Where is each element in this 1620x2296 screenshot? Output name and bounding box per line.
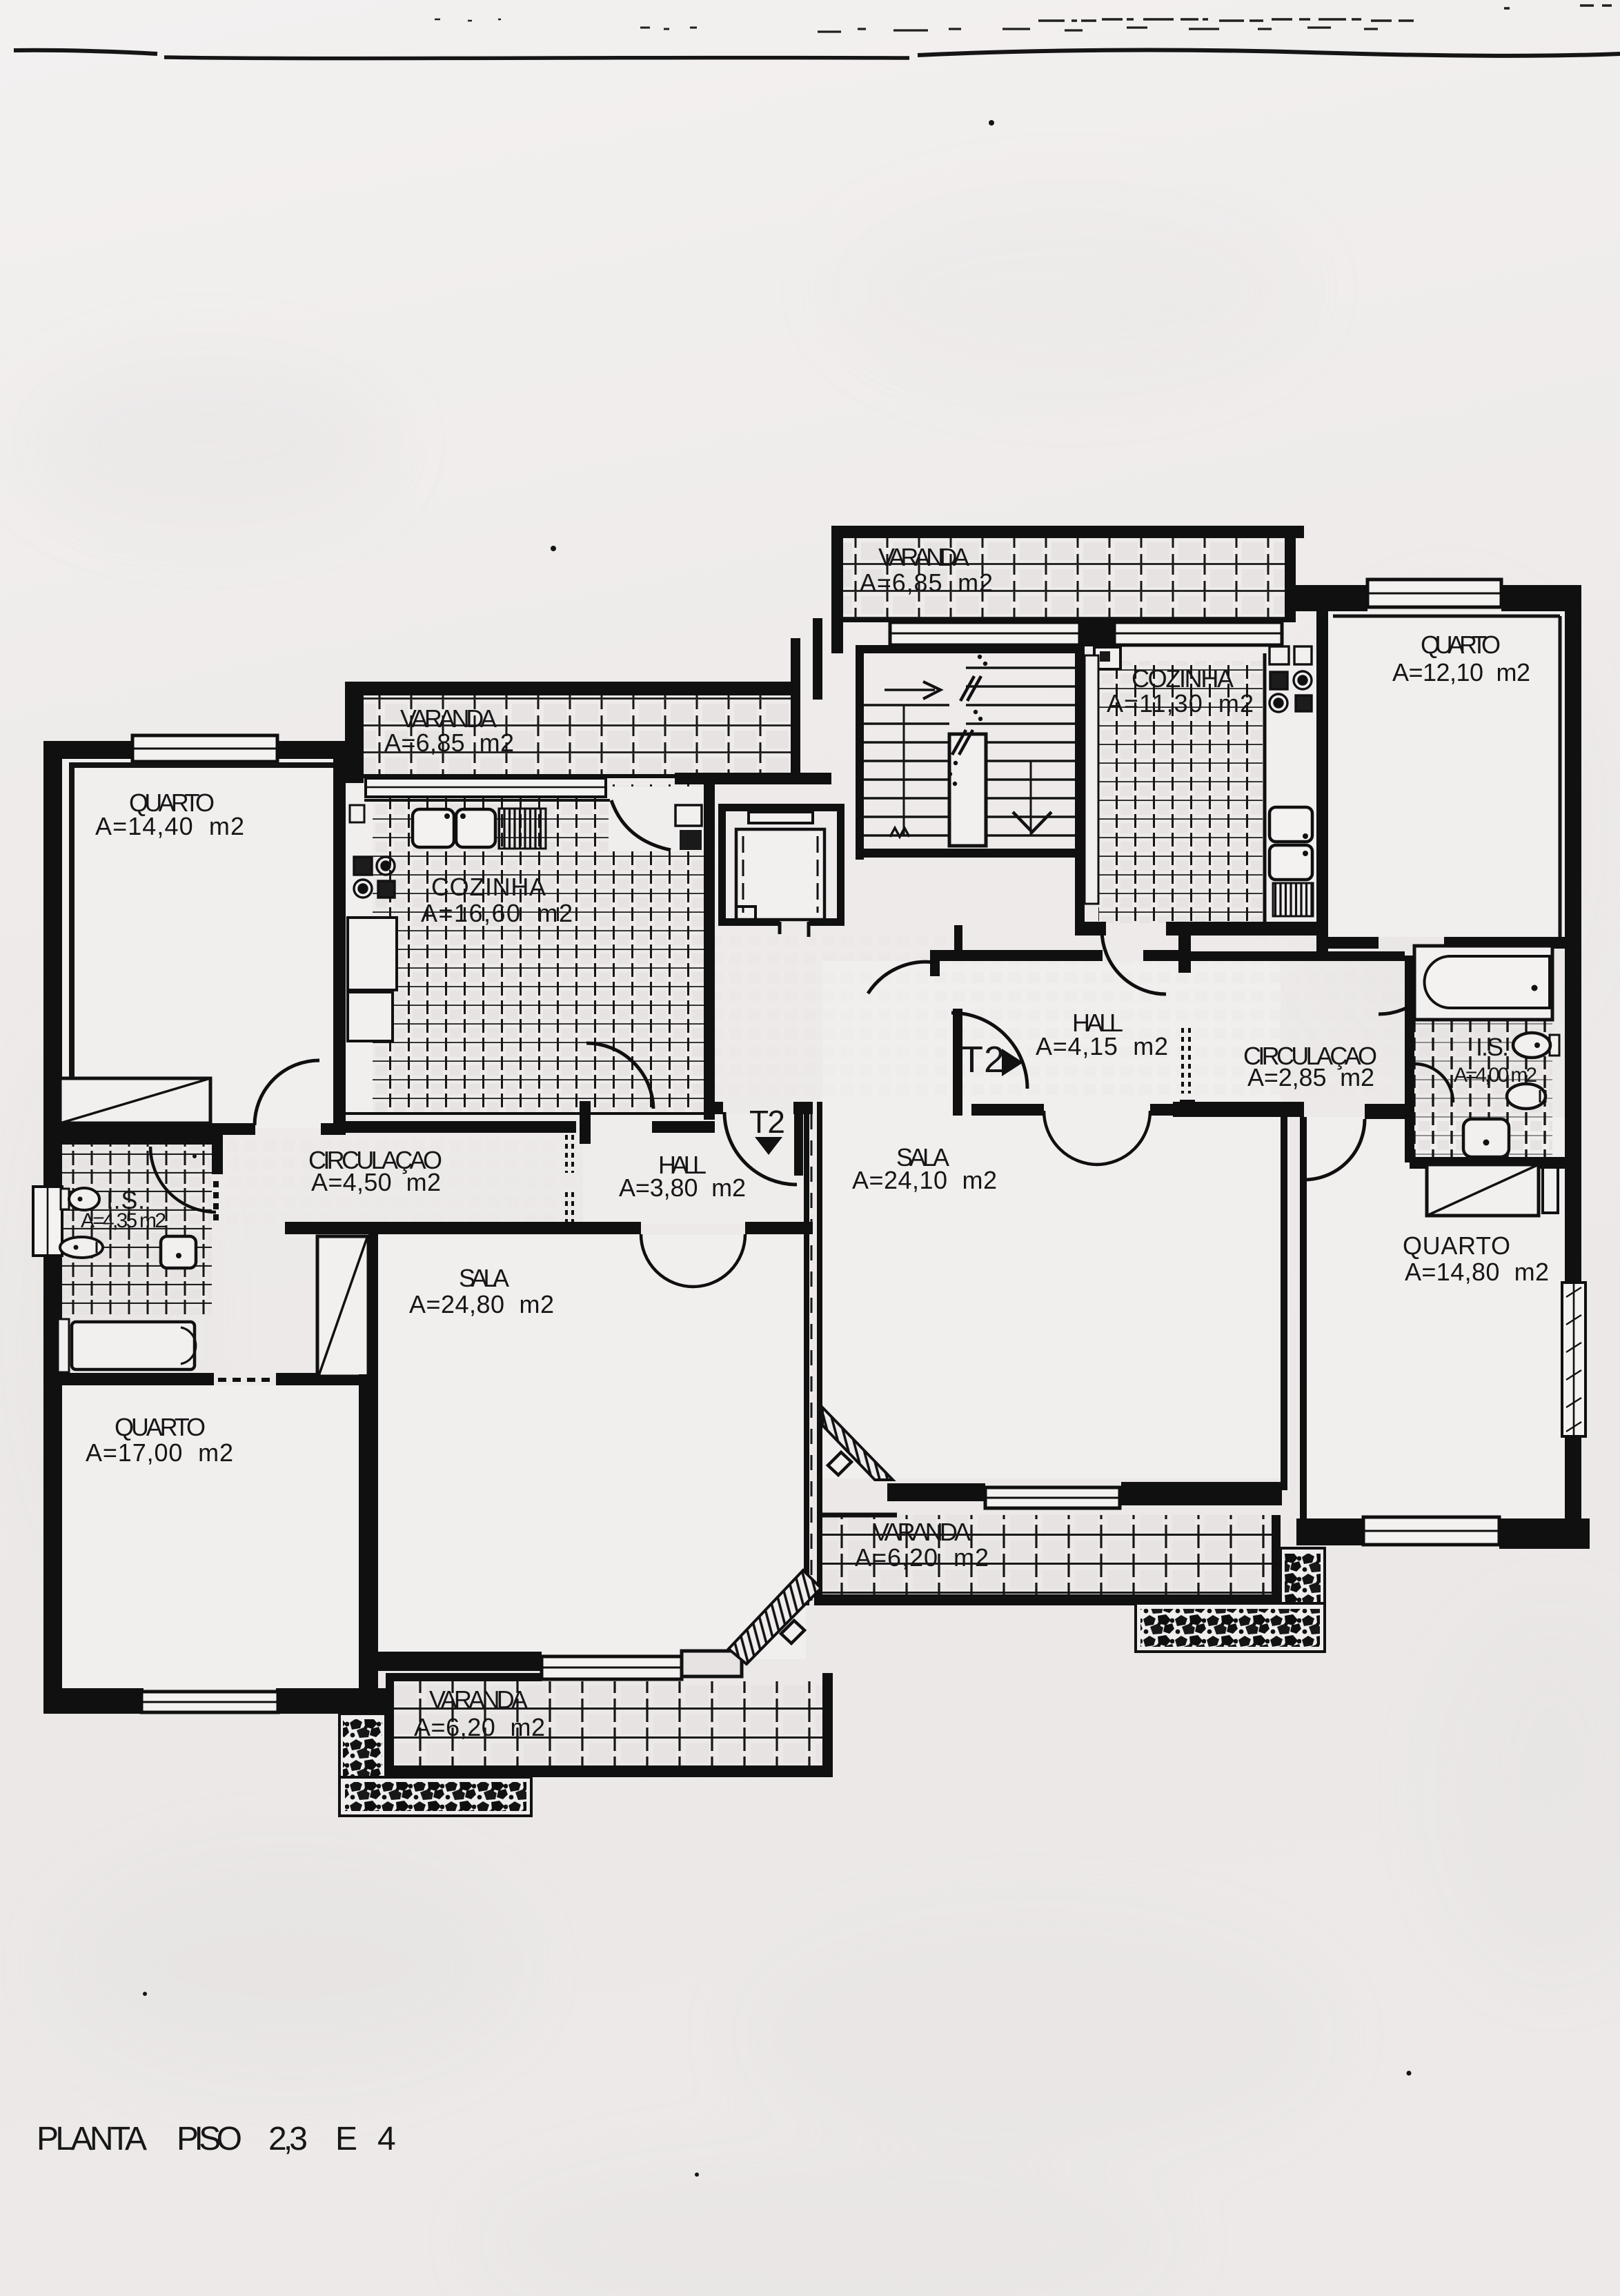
svg-text:QUARTO: QUARTO	[1403, 1231, 1512, 1260]
svg-text:A=6,85 m2: A=6,85 m2	[860, 568, 994, 597]
svg-text:A=24,10 m2: A=24,10 m2	[852, 1166, 998, 1194]
svg-text:A=4,50 m2: A=4,50 m2	[311, 1168, 442, 1196]
svg-text:4: 4	[377, 2121, 399, 2157]
svg-text:A=6,20 m2: A=6,20 m2	[855, 1543, 990, 1572]
svg-text:T2: T2	[960, 1039, 1006, 1080]
svg-text:A=14,80 m2: A=14,80 m2	[1405, 1258, 1550, 1286]
svg-text:SALA: SALA	[459, 1264, 511, 1292]
svg-text:COZINHA: COZINHA	[431, 873, 547, 901]
svg-text:A=2,85 m2: A=2,85 m2	[1247, 1063, 1376, 1091]
svg-text:A=4,35 m2: A=4,35 m2	[81, 1209, 168, 1232]
svg-text:T2: T2	[749, 1104, 787, 1140]
svg-text:E: E	[335, 2121, 360, 2157]
svg-text:VARANDA: VARANDA	[873, 1518, 972, 1546]
svg-text:QUARTO: QUARTO	[115, 1413, 207, 1441]
svg-text:COZINHA: COZINHA	[1132, 664, 1235, 693]
svg-text:VARANDA: VARANDA	[878, 543, 971, 571]
svg-text:A=3,80 m2: A=3,80 m2	[619, 1174, 747, 1202]
svg-text:A=14,40 m2: A=14,40 m2	[95, 812, 246, 840]
svg-text:VARANDA: VARANDA	[429, 1685, 529, 1714]
svg-text:A=17,00 m2: A=17,00 m2	[86, 1438, 235, 1467]
svg-text:A=24,80 m2: A=24,80 m2	[409, 1290, 555, 1318]
svg-text:A=12,10 m2: A=12,10 m2	[1392, 658, 1532, 686]
svg-text:A=11,30 m2: A=11,30 m2	[1107, 689, 1255, 717]
svg-text:A=6,85 m2: A=6,85 m2	[384, 729, 515, 757]
svg-text:I.S.: I.S.	[1476, 1033, 1510, 1061]
svg-text:PISO: PISO	[177, 2121, 245, 2157]
svg-text:A=4,15 m2: A=4,15 m2	[1036, 1032, 1169, 1060]
svg-text:2,3: 2,3	[268, 2121, 310, 2157]
svg-text:QUARTO: QUARTO	[1421, 631, 1502, 659]
svg-text:A=16,60 m2: A=16,60 m2	[421, 899, 574, 927]
svg-text:A=4,00 m2: A=4,00 m2	[1454, 1064, 1539, 1087]
svg-text:A=6,20 m2: A=6,20 m2	[414, 1713, 546, 1741]
svg-text:PLANTA: PLANTA	[37, 2121, 150, 2157]
